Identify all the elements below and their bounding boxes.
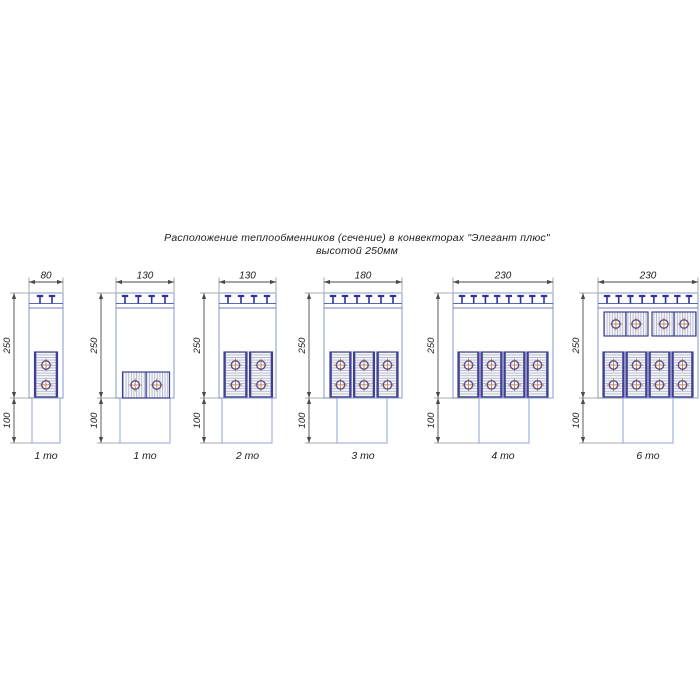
dim-arrow xyxy=(57,280,63,284)
dim-arrow xyxy=(692,280,698,284)
width-dim-label: 130 xyxy=(137,271,154,282)
width-dim-label: 230 xyxy=(494,271,512,282)
heat-exchanger-block xyxy=(35,352,58,397)
pedestal-height-label: 100 xyxy=(192,412,203,429)
dim-arrow xyxy=(116,280,122,284)
dim-arrow xyxy=(581,392,585,398)
dim-arrow xyxy=(598,280,604,284)
heat-exchanger-block xyxy=(604,312,648,336)
dim-arrow xyxy=(436,293,440,299)
diagram-label: 6 то xyxy=(636,450,659,462)
heat-exchanger-block xyxy=(649,352,670,397)
heat-exchanger-block xyxy=(123,372,170,398)
diagram-label: 1 то xyxy=(133,450,156,462)
heat-exchanger-block xyxy=(354,352,375,397)
heat-exchanger-block xyxy=(330,352,351,397)
pedestal-height-label: 100 xyxy=(426,412,437,429)
width-dim-label: 130 xyxy=(239,271,256,282)
diagram-label: 4 то xyxy=(491,450,514,462)
dim-arrow xyxy=(12,293,16,299)
body-height-label: 250 xyxy=(426,337,437,355)
dim-arrow xyxy=(436,392,440,398)
height-dimension: 250100 xyxy=(192,293,222,443)
dim-arrow xyxy=(99,398,103,404)
body-height-label: 250 xyxy=(571,337,582,355)
height-dimension: 250100 xyxy=(2,293,32,443)
width-dimension: 80 xyxy=(29,271,63,293)
body-height-label: 250 xyxy=(192,337,203,355)
heat-exchanger-block xyxy=(481,352,502,397)
convector-diagram: 1302501001 то xyxy=(89,271,174,463)
dim-arrow xyxy=(12,392,16,398)
dim-arrow xyxy=(581,293,585,299)
convector-diagram: 2302501006 то xyxy=(571,271,698,463)
dim-arrow xyxy=(99,437,103,443)
dim-arrow xyxy=(270,280,276,284)
width-dimension: 130 xyxy=(219,271,276,293)
dim-arrow xyxy=(202,437,206,443)
pedestal-height-label: 100 xyxy=(297,412,308,429)
pedestal xyxy=(337,398,387,443)
dim-arrow xyxy=(307,398,311,404)
dim-arrow xyxy=(99,293,103,299)
body-height-label: 250 xyxy=(89,337,100,355)
pedestal xyxy=(222,398,272,443)
diagram-label: 1 то xyxy=(34,450,57,462)
convector-diagram: 802501001 то xyxy=(2,271,63,463)
heat-exchanger-block xyxy=(458,352,479,397)
pedestal xyxy=(120,398,170,443)
convector-diagram: 1302501002 то xyxy=(192,271,276,463)
dim-arrow xyxy=(12,437,16,443)
heat-exchanger-block xyxy=(224,352,247,397)
heat-exchanger-block xyxy=(250,352,273,397)
dim-arrow xyxy=(581,437,585,443)
pedestal xyxy=(32,398,60,443)
dim-arrow xyxy=(202,398,206,404)
heat-exchanger-block xyxy=(626,352,647,397)
technical-drawing: 802501001 то1302501001 то1302501002 то18… xyxy=(0,0,700,700)
width-dim-label: 230 xyxy=(639,271,657,282)
pedestal-height-label: 100 xyxy=(89,412,100,429)
convector-diagram: 1802501003 то xyxy=(297,271,402,463)
width-dimension: 230 xyxy=(453,271,553,293)
dim-arrow xyxy=(99,392,103,398)
pedestal xyxy=(623,398,673,443)
heat-exchanger-block xyxy=(527,352,548,397)
pedestal xyxy=(479,398,529,443)
width-dim-label: 180 xyxy=(355,271,372,282)
dim-arrow xyxy=(307,437,311,443)
dim-arrow xyxy=(307,392,311,398)
dim-arrow xyxy=(396,280,402,284)
diagram-label: 3 то xyxy=(351,450,374,462)
dim-arrow xyxy=(168,280,174,284)
dim-arrow xyxy=(307,293,311,299)
heat-exchanger-block xyxy=(377,352,398,397)
body-height-label: 250 xyxy=(297,337,308,355)
pedestal-height-label: 100 xyxy=(2,412,13,429)
body-height-label: 250 xyxy=(2,337,13,355)
dim-arrow xyxy=(202,293,206,299)
width-dimension: 180 xyxy=(324,271,402,293)
convector-diagram: 2302501004 то xyxy=(426,271,553,463)
dim-arrow xyxy=(29,280,35,284)
dim-arrow xyxy=(202,392,206,398)
heat-exchanger-block xyxy=(504,352,525,397)
dim-arrow xyxy=(324,280,330,284)
width-dim-label: 80 xyxy=(40,271,52,282)
heat-exchanger-block xyxy=(672,352,693,397)
dim-arrow xyxy=(453,280,459,284)
diagram-label: 2 то xyxy=(235,450,259,462)
dim-arrow xyxy=(436,398,440,404)
pedestal-height-label: 100 xyxy=(571,412,582,429)
heat-exchanger-block xyxy=(652,312,696,336)
dim-arrow xyxy=(12,398,16,404)
height-dimension: 250100 xyxy=(89,293,120,443)
dim-arrow xyxy=(581,398,585,404)
dim-arrow xyxy=(547,280,553,284)
width-dimension: 230 xyxy=(598,271,698,293)
dim-arrow xyxy=(219,280,225,284)
dim-arrow xyxy=(436,437,440,443)
heat-exchanger-block xyxy=(603,352,624,397)
width-dimension: 130 xyxy=(116,271,174,293)
drawing-canvas: Расположение теплообменников (сечение) в… xyxy=(0,0,700,700)
